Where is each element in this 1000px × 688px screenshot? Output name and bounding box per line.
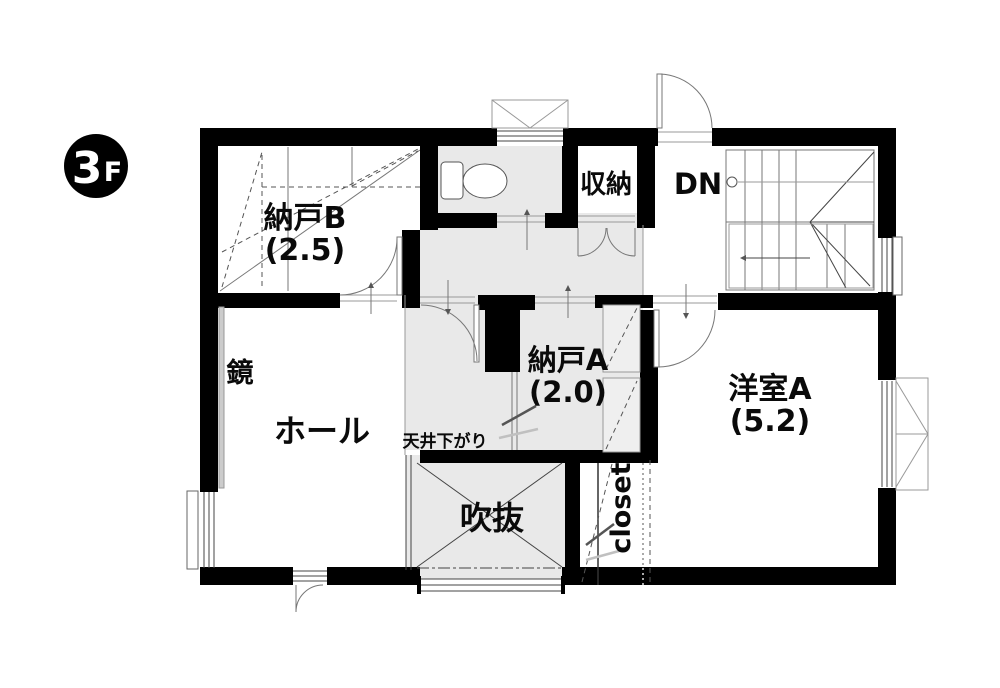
window-left-outer bbox=[187, 491, 198, 569]
nando-b-label: 納戸B bbox=[264, 201, 347, 236]
window-right-stairs bbox=[882, 237, 902, 295]
door-top-exterior bbox=[657, 74, 712, 142]
window-left-hall bbox=[187, 491, 214, 569]
fukinuke-label: 吹抜 bbox=[460, 499, 524, 537]
toilet-bowl bbox=[463, 164, 507, 198]
floor-badge: 3 F bbox=[64, 134, 128, 198]
floor-badge-letter: F bbox=[104, 157, 122, 188]
mirror-strip bbox=[219, 307, 224, 488]
window-bottom-void bbox=[417, 576, 565, 594]
void-sill bbox=[417, 567, 562, 579]
door-yoshitsu-a bbox=[653, 284, 717, 367]
hall-label: ホール bbox=[274, 412, 370, 450]
window-right-stairs-outer bbox=[893, 237, 902, 295]
shuno-label: 収納 bbox=[580, 169, 632, 200]
toilet-fixture-icon bbox=[441, 162, 507, 199]
nando-a-label: 納戸A bbox=[528, 343, 609, 377]
floorplan-canvas: 納戸B (2.5) 収納 DN 鏡 ホール 納戸A (2.0) 洋室A (5.2… bbox=[0, 0, 1000, 688]
staircase bbox=[726, 150, 874, 290]
yoshitsu-a-label: 洋室A bbox=[728, 372, 812, 407]
closet-label: closet bbox=[606, 462, 637, 553]
floor-badge-digit: 3 bbox=[72, 143, 103, 194]
nando-b-size-label: (2.5) bbox=[265, 233, 346, 268]
floorplan-drawing: 納戸B (2.5) 収納 DN 鏡 ホール 納戸A (2.0) 洋室A (5.2… bbox=[0, 0, 1000, 688]
nando-a-size-label: (2.0) bbox=[529, 375, 607, 409]
window-bottom-small bbox=[293, 571, 327, 612]
bay-window-yoshitsu bbox=[882, 378, 928, 490]
stairs-newel-post bbox=[727, 177, 737, 187]
toilet-tank bbox=[441, 162, 463, 199]
ceiling-drop-label: 天井下がり bbox=[403, 431, 488, 452]
mirror-label: 鏡 bbox=[227, 357, 254, 389]
dn-label: DN bbox=[674, 167, 722, 201]
door-nando-b bbox=[340, 237, 402, 314]
window-top-toilet bbox=[492, 100, 568, 146]
yoshitsu-a-size-label: (5.2) bbox=[730, 404, 811, 439]
